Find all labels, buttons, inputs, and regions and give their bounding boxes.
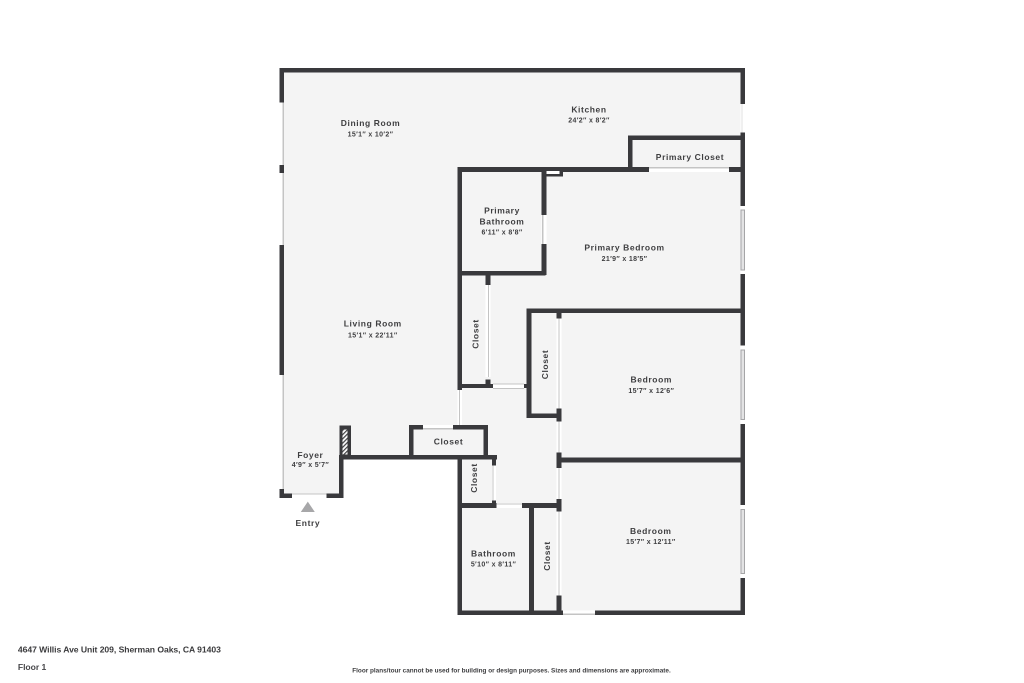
svg-text:Primary Closet: Primary Closet — [656, 152, 724, 162]
svg-text:21′9″ x 18′5″: 21′9″ x 18′5″ — [602, 256, 648, 263]
svg-text:15′1″ x 10′2″: 15′1″ x 10′2″ — [348, 132, 394, 139]
svg-text:6′11″ x 8′8″: 6′11″ x 8′8″ — [481, 230, 522, 237]
svg-text:Floor plans/tour cannot be use: Floor plans/tour cannot be used for buil… — [352, 668, 671, 675]
svg-text:Closet: Closet — [540, 350, 550, 380]
svg-text:Primary: Primary — [484, 205, 520, 215]
svg-text:Closet: Closet — [469, 463, 479, 493]
svg-text:Kitchen: Kitchen — [571, 104, 606, 114]
svg-text:Bedroom: Bedroom — [631, 375, 673, 385]
svg-text:Entry: Entry — [296, 518, 321, 528]
svg-text:Dining Room: Dining Room — [341, 118, 400, 128]
svg-text:Foyer: Foyer — [297, 450, 323, 460]
svg-text:Closet: Closet — [434, 437, 464, 447]
svg-text:Closet: Closet — [542, 541, 552, 571]
svg-text:Closet: Closet — [470, 319, 480, 349]
svg-text:15′7″ x 12′6″: 15′7″ x 12′6″ — [628, 388, 674, 395]
svg-text:24′2″ x 8′2″: 24′2″ x 8′2″ — [568, 118, 610, 125]
svg-text:Primary Bedroom: Primary Bedroom — [584, 243, 664, 253]
svg-text:15′7″ x 12′11″: 15′7″ x 12′11″ — [626, 539, 676, 546]
svg-text:5′10″ x 8′11″: 5′10″ x 8′11″ — [471, 561, 517, 568]
svg-text:15′1″ x 22′11″: 15′1″ x 22′11″ — [348, 332, 398, 339]
svg-text:Bathroom: Bathroom — [480, 217, 525, 227]
svg-text:Bedroom: Bedroom — [630, 526, 672, 536]
svg-text:4′9″ x 5′7″: 4′9″ x 5′7″ — [292, 462, 330, 469]
svg-text:Living Room: Living Room — [344, 319, 402, 329]
svg-text:4647 Willis Ave Unit 209, Sher: 4647 Willis Ave Unit 209, Sherman Oaks, … — [18, 644, 221, 654]
svg-text:Bathroom: Bathroom — [471, 548, 516, 558]
svg-text:Floor 1: Floor 1 — [18, 662, 47, 672]
